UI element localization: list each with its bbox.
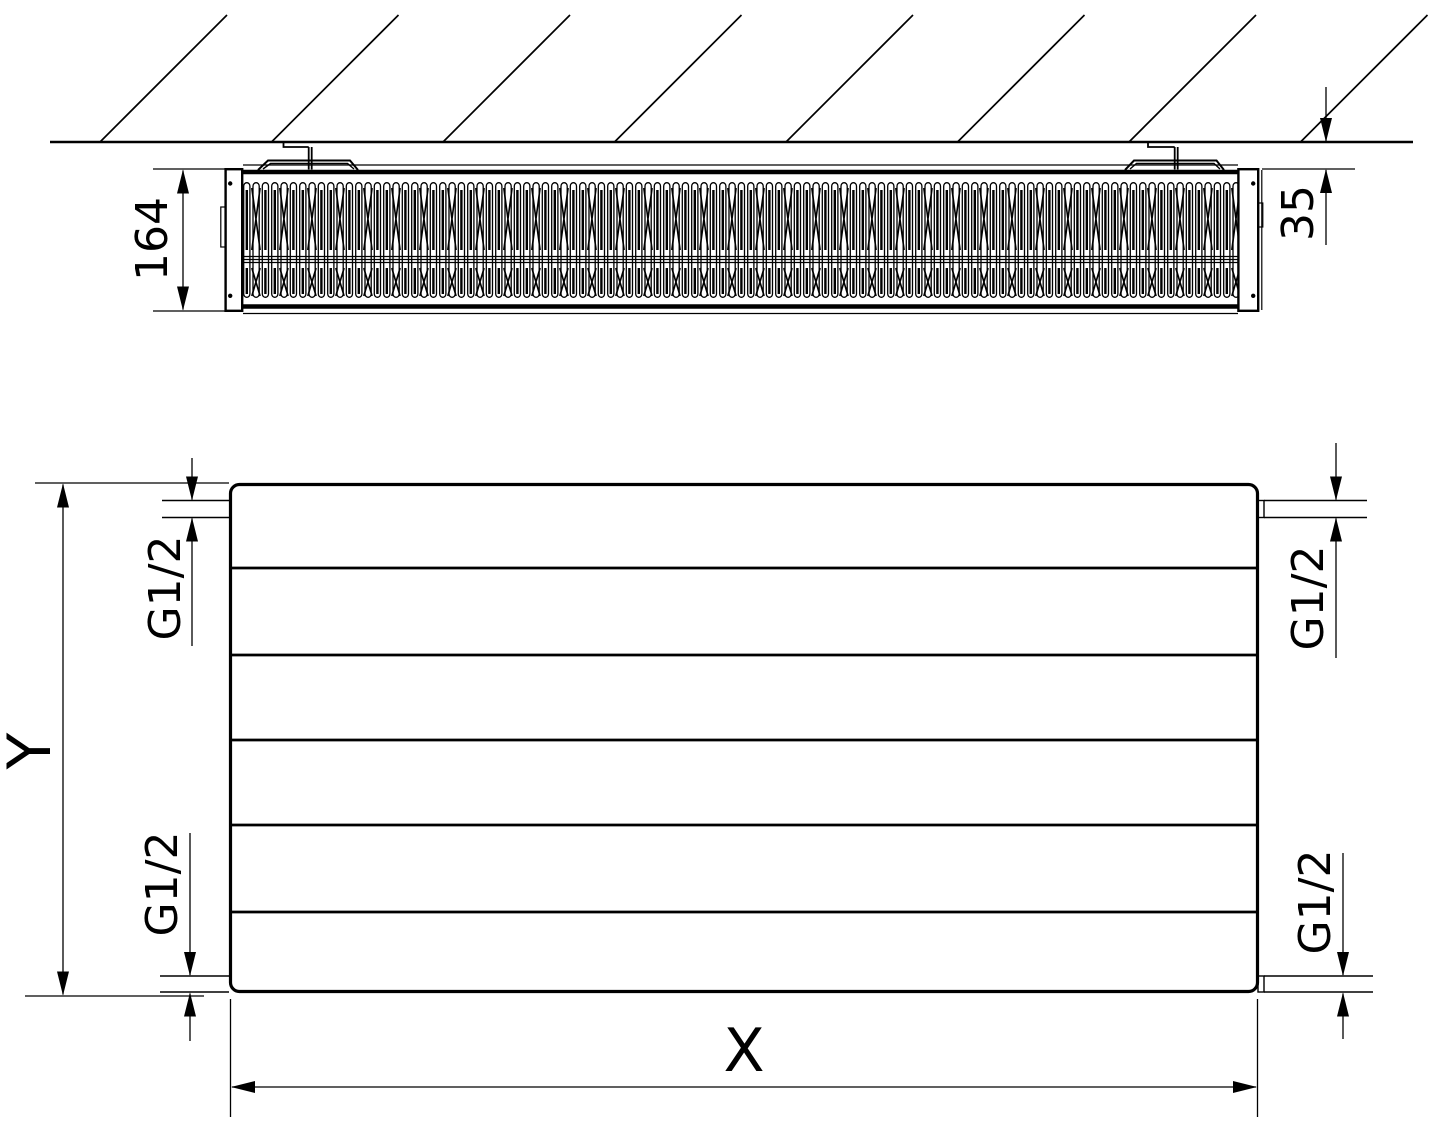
wall-hatching xyxy=(50,15,1428,142)
thread-label-bottom-right: G1/2 xyxy=(1290,850,1341,955)
dimension-thread-bottom-right: G1/2 xyxy=(1290,850,1343,1039)
connection-stub-bottom-left xyxy=(160,976,229,992)
screw-dot xyxy=(228,181,232,185)
convector-fins xyxy=(243,182,1238,298)
dimension-depth: 164 xyxy=(127,169,225,311)
depth-dimension-label: 164 xyxy=(127,197,178,281)
mounting-bracket-right xyxy=(1125,142,1224,170)
front-view: Y X G1/2 G1/2 G1/2 G1/2 xyxy=(0,443,1373,1117)
dimension-wall-gap: 35 xyxy=(1262,87,1355,245)
panel-seam-lines xyxy=(232,568,1256,912)
connection-stub-top-right xyxy=(1258,501,1367,518)
dimension-thread-top-right: G1/2 xyxy=(1283,443,1336,658)
radiator-front-panel xyxy=(231,485,1258,992)
thread-label-top-right: G1/2 xyxy=(1283,546,1334,651)
connection-stub-bottom-right xyxy=(1258,976,1373,992)
thread-label-bottom-left: G1/2 xyxy=(137,832,188,937)
screw-dot xyxy=(228,294,232,298)
end-cap-left xyxy=(226,169,243,311)
radiator-technical-drawing: 164 35 xyxy=(0,0,1441,1125)
connection-stub-top-left xyxy=(162,501,229,518)
dimension-height-y: Y xyxy=(0,483,229,996)
thread-label-top-left: G1/2 xyxy=(140,536,191,641)
height-dimension-label: Y xyxy=(0,732,65,770)
screw-dot xyxy=(1251,294,1255,298)
section-view: 164 35 xyxy=(50,15,1428,314)
dimension-length-x: X xyxy=(231,999,1258,1117)
end-cap-right xyxy=(1238,169,1258,311)
dimension-thread-bottom-left: G1/2 xyxy=(137,832,190,1041)
length-dimension-label: X xyxy=(723,1016,764,1086)
radiator-section xyxy=(221,165,1263,314)
mounting-bracket-left xyxy=(258,142,358,170)
screw-dot xyxy=(1251,181,1255,185)
dimension-thread-top-left: G1/2 xyxy=(140,458,192,646)
wall-gap-dimension-label: 35 xyxy=(1273,185,1324,241)
